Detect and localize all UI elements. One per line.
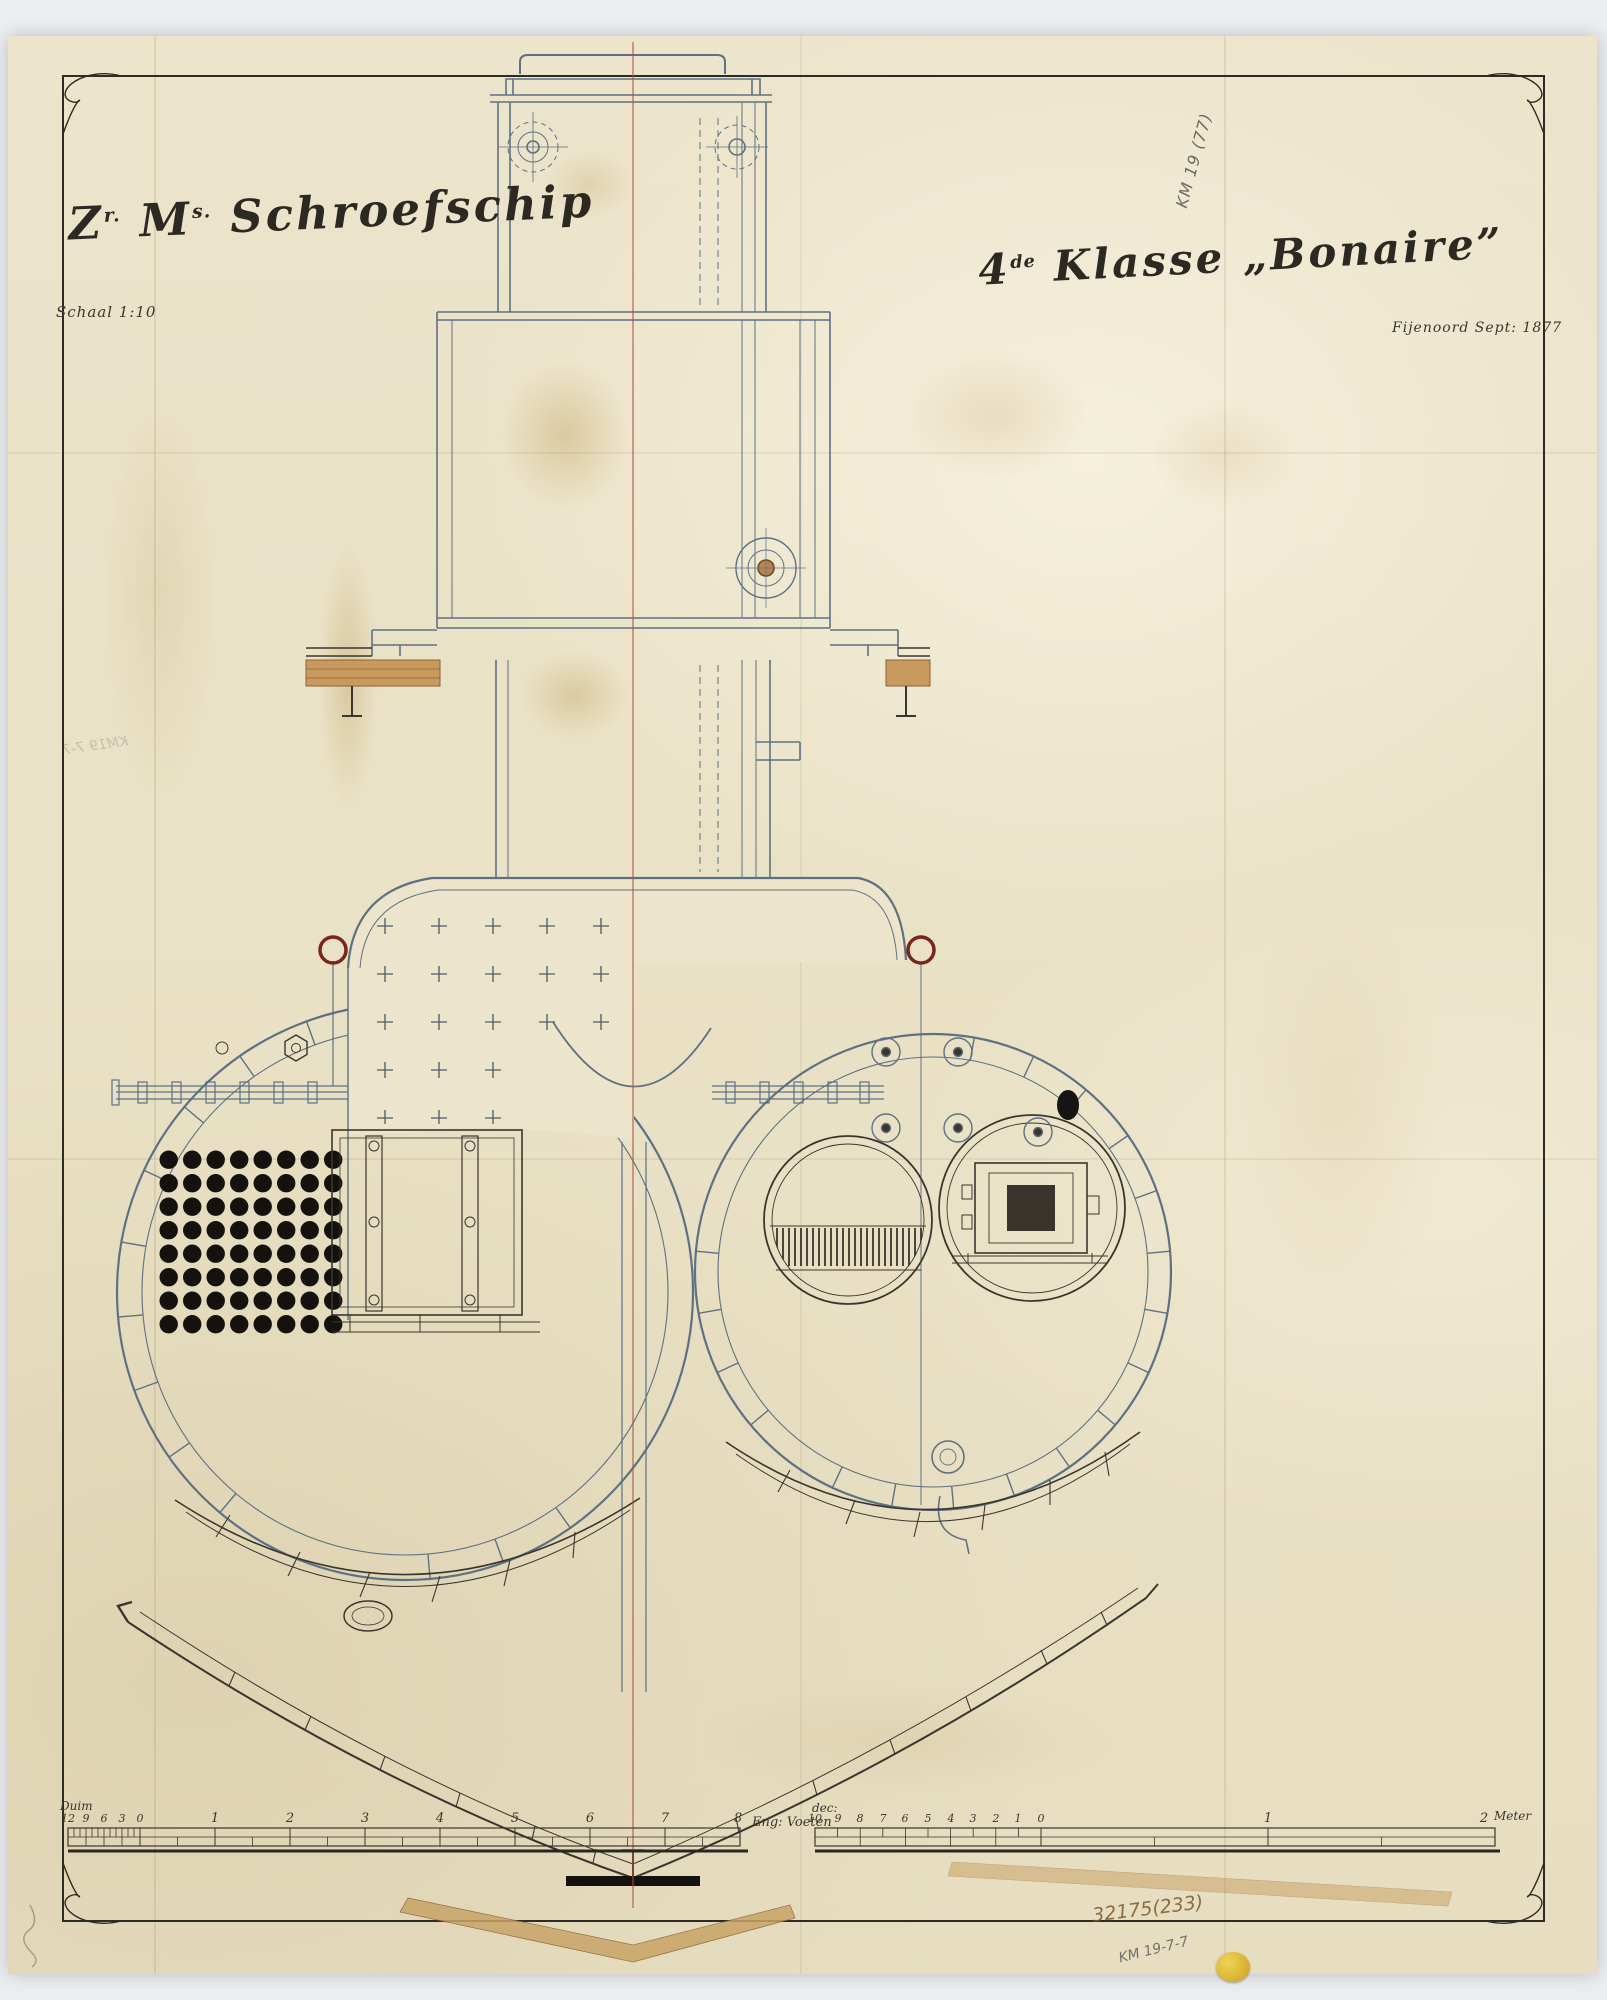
svg-text:10: 10 <box>808 1812 822 1825</box>
svg-text:3: 3 <box>119 1812 126 1825</box>
right-drum-interior <box>712 962 1125 1554</box>
furnace-front-panel <box>332 1130 540 1332</box>
title-right-klasse: Klasse <box>1052 233 1226 291</box>
svg-text:4: 4 <box>947 1812 955 1825</box>
svg-text:5: 5 <box>511 1811 519 1826</box>
svg-text:6: 6 <box>101 1812 108 1825</box>
svg-text:8: 8 <box>734 1811 742 1826</box>
deck-stanchion-right <box>896 686 916 716</box>
svg-text:2: 2 <box>992 1812 1000 1825</box>
boiler-drawing: Duim 12 9 6 3 0 1 2 3 4 5 6 7 8 Eng: Voe… <box>0 0 1607 2000</box>
stay-bolt-circles <box>872 1038 1052 1146</box>
svg-text:Meter: Meter <box>1493 1809 1532 1823</box>
rivet-crosshair-left <box>498 112 568 182</box>
svg-text:1: 1 <box>1264 1811 1272 1826</box>
furnace-door <box>939 1115 1125 1301</box>
svg-text:3: 3 <box>970 1812 977 1825</box>
tape-remnants <box>400 1862 1452 1962</box>
scale-bar-metric: dec: 10 9 8 7 6 5 4 3 2 1 0 1 2 Meter <box>808 1801 1532 1851</box>
svg-text:2: 2 <box>285 1811 294 1826</box>
hex-nut <box>285 1035 307 1061</box>
svg-text:0: 0 <box>1038 1812 1045 1825</box>
tube-plate <box>157 1148 345 1336</box>
ink-blot <box>1057 1090 1079 1120</box>
border-frame <box>63 74 1544 1924</box>
scanned-drawing-page: Duim 12 9 6 3 0 1 2 3 4 5 6 7 8 Eng: Voe… <box>0 0 1607 2000</box>
title-left-z-sup: r. <box>103 204 121 227</box>
funnel-uptake <box>306 55 930 878</box>
manhole-circle <box>726 528 806 608</box>
svg-text:2: 2 <box>1479 1811 1488 1826</box>
rivet-crosshair-right <box>706 116 768 178</box>
svg-text:9: 9 <box>835 1812 842 1825</box>
title-right-num: 4 <box>977 244 1012 295</box>
title-left-m: M <box>138 192 193 247</box>
svg-text:9: 9 <box>83 1812 90 1825</box>
yard-date: Fijenoord Sept: 1877 <box>1392 320 1562 336</box>
svg-text:8: 8 <box>857 1812 864 1825</box>
archive-sticker <box>1216 1952 1250 1982</box>
handhole <box>344 1601 392 1631</box>
svg-text:3: 3 <box>361 1811 369 1826</box>
svg-text:6: 6 <box>902 1812 909 1825</box>
svg-text:Duim: Duim <box>59 1799 93 1813</box>
title-right-num-sup: de <box>1010 251 1037 273</box>
deck-planks <box>306 660 930 720</box>
title-left-z: Z <box>67 196 105 251</box>
hull-and-cradle <box>118 1432 1158 1886</box>
corner-scribble <box>24 1905 36 1967</box>
grate-opening <box>764 1136 932 1304</box>
svg-text:1: 1 <box>211 1811 219 1826</box>
title-left-m-sup: s. <box>192 200 212 223</box>
svg-text:4: 4 <box>435 1811 444 1826</box>
manhole-small <box>932 1441 964 1473</box>
scale-note: Schaal 1:10 <box>56 303 156 321</box>
svg-text:12: 12 <box>61 1812 75 1825</box>
svg-text:0: 0 <box>137 1812 144 1825</box>
svg-text:1: 1 <box>1015 1812 1022 1825</box>
svg-text:6: 6 <box>586 1811 594 1826</box>
deck-stanchion-left <box>342 686 362 720</box>
center-column <box>622 1142 646 1692</box>
svg-text:5: 5 <box>925 1812 932 1825</box>
svg-text:7: 7 <box>880 1812 887 1825</box>
svg-text:7: 7 <box>661 1811 670 1826</box>
